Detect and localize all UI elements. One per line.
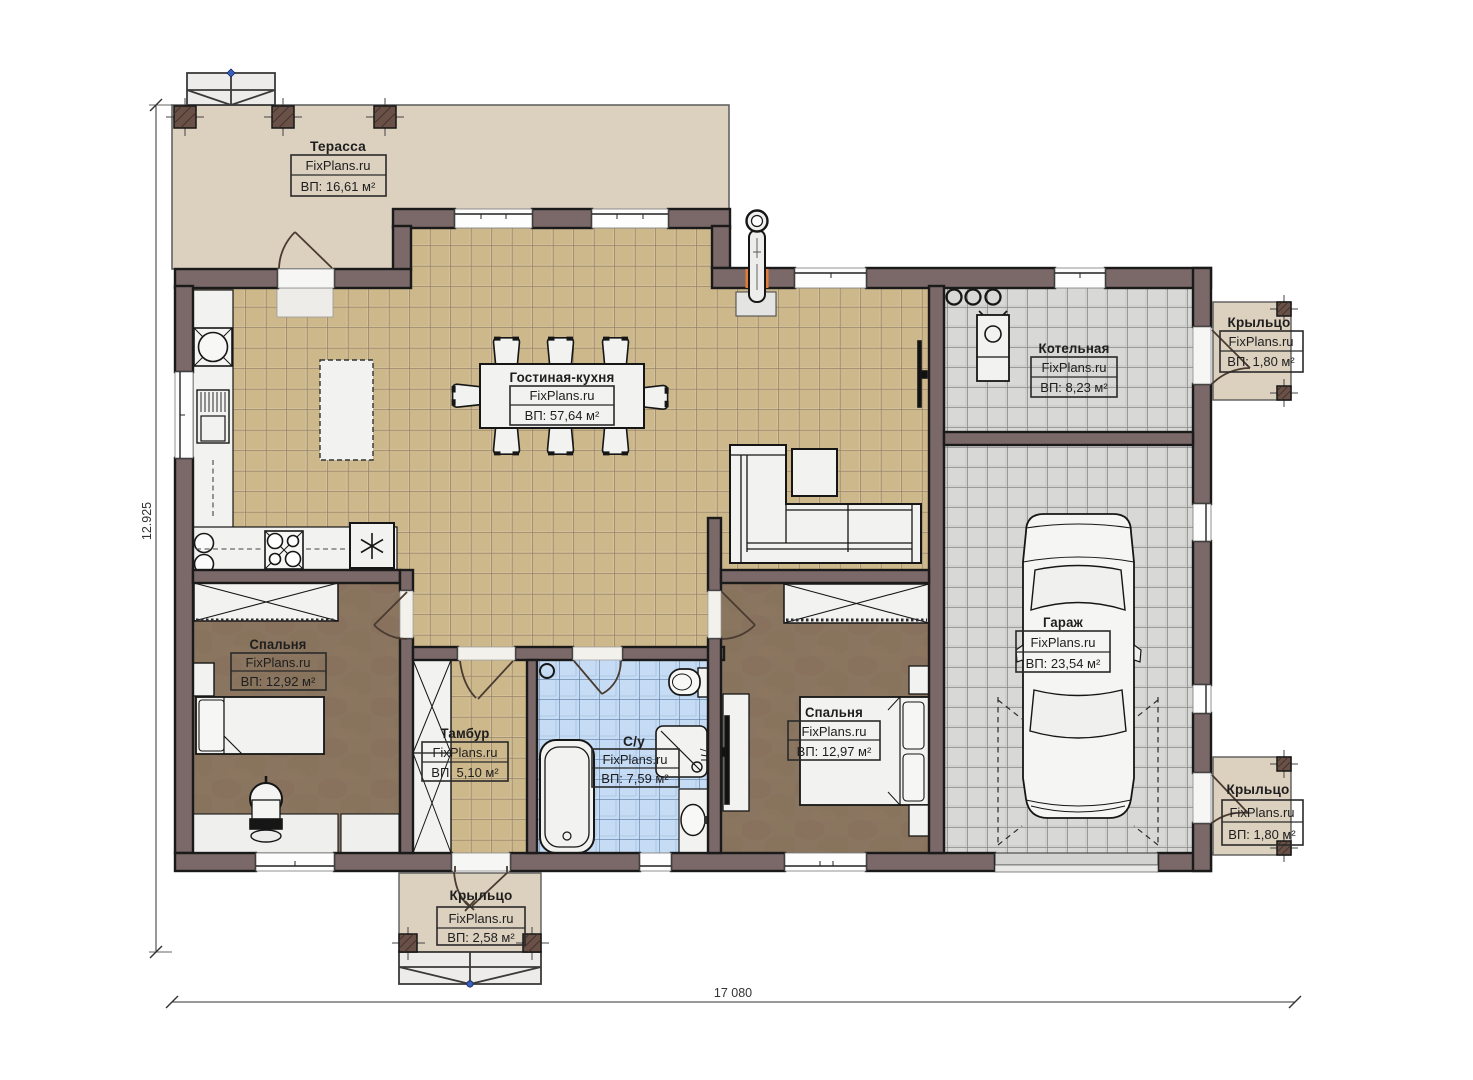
svg-text:Терасса: Терасса (310, 138, 366, 154)
svg-text:FixPlans.ru: FixPlans.ru (1041, 360, 1106, 375)
svg-text:ВП: 16,61 м²: ВП: 16,61 м² (301, 179, 376, 194)
svg-text:ВП: 8,23 м²: ВП: 8,23 м² (1040, 380, 1108, 395)
svg-text:Крыльцо: Крыльцо (450, 887, 513, 903)
svg-text:ВП: 12,97 м²: ВП: 12,97 м² (797, 744, 872, 759)
svg-text:FixPlans.ru: FixPlans.ru (801, 724, 866, 739)
svg-text:Крыльцо: Крыльцо (1227, 781, 1290, 797)
svg-text:ВП: 5,10 м²: ВП: 5,10 м² (431, 765, 499, 780)
svg-text:Котельная: Котельная (1039, 340, 1110, 356)
svg-text:FixPlans.ru: FixPlans.ru (1229, 805, 1294, 820)
svg-text:С/у: С/у (623, 733, 645, 749)
svg-text:Тамбур: Тамбур (441, 725, 490, 741)
svg-text:FixPlans.ru: FixPlans.ru (245, 655, 310, 670)
svg-text:FixPlans.ru: FixPlans.ru (432, 745, 497, 760)
svg-text:ВП: 23,54 м²: ВП: 23,54 м² (1026, 656, 1101, 671)
svg-text:ВП: 1,80 м²: ВП: 1,80 м² (1227, 354, 1295, 369)
svg-text:ВП: 57,64 м²: ВП: 57,64 м² (525, 408, 600, 423)
svg-text:ВП: 7,59 м²: ВП: 7,59 м² (601, 771, 669, 786)
svg-text:FixPlans.ru: FixPlans.ru (602, 752, 667, 767)
svg-text:Спальня: Спальня (805, 704, 863, 720)
svg-text:Спальня: Спальня (250, 636, 307, 652)
svg-text:FixPlans.ru: FixPlans.ru (305, 158, 370, 173)
svg-text:Гостиная-кухня: Гостиная-кухня (510, 369, 615, 385)
svg-text:FixPlans.ru: FixPlans.ru (529, 388, 594, 403)
svg-text:ВП: 2,58 м²: ВП: 2,58 м² (447, 930, 515, 945)
svg-text:ВП: 1,80 м²: ВП: 1,80 м² (1228, 827, 1296, 842)
svg-text:FixPlans.ru: FixPlans.ru (1228, 334, 1293, 349)
svg-text:17 080: 17 080 (714, 986, 752, 1000)
svg-text:Крыльцо: Крыльцо (1228, 314, 1291, 330)
svg-text:Гараж: Гараж (1043, 614, 1084, 630)
svg-text:ВП: 12,92 м²: ВП: 12,92 м² (241, 674, 316, 689)
svg-text:12.925: 12.925 (140, 502, 154, 540)
svg-text:FixPlans.ru: FixPlans.ru (448, 911, 513, 926)
svg-text:FixPlans.ru: FixPlans.ru (1030, 635, 1095, 650)
